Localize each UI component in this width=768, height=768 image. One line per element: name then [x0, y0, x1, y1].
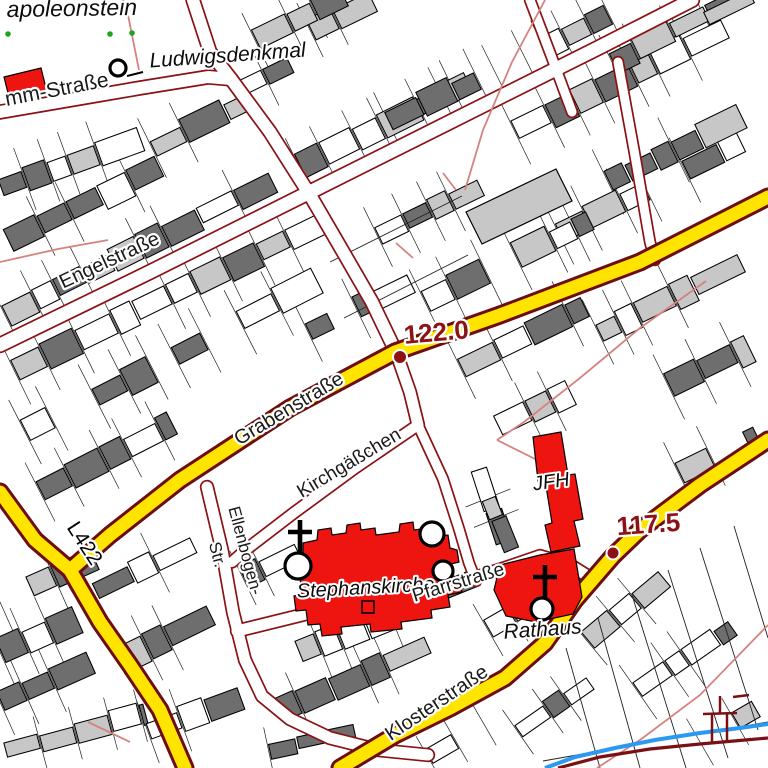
map-canvas[interactable]: apoleonstein Ludwigsdenkmal mm-Straße En…	[0, 0, 768, 768]
label-rathaus: Rathaus	[503, 615, 583, 643]
label-napoleonstein: apoleonstein	[6, 0, 137, 22]
label-grabenstrasse: Grabenstraße	[230, 368, 347, 450]
topographic-map[interactable]: apoleonstein Ludwigsdenkmal mm-Straße En…	[0, 0, 768, 768]
water-layer	[545, 695, 768, 768]
label-kirchgaesschen: Kirchgäßchen	[294, 424, 405, 502]
label-elevation-122: 122.0	[402, 314, 469, 350]
label-elevation-117: 117.5	[616, 507, 682, 541]
